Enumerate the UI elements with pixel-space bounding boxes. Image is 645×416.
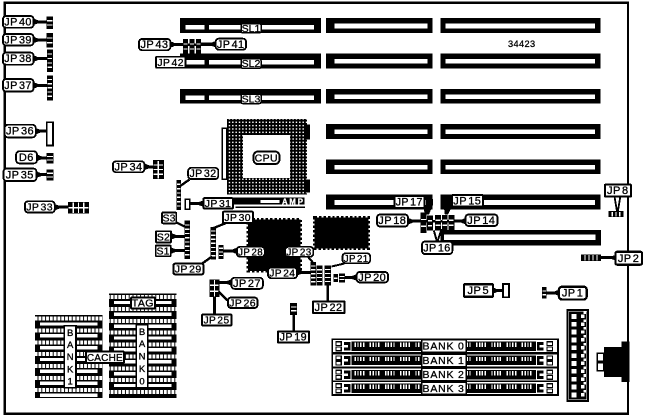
svg-text:JP 38: JP 38 bbox=[4, 53, 32, 65]
svg-text:JP 32: JP 32 bbox=[189, 168, 216, 180]
svg-text:K: K bbox=[139, 364, 146, 375]
svg-text:BANK 1: BANK 1 bbox=[423, 355, 465, 367]
svg-text:JP 15: JP 15 bbox=[453, 195, 481, 207]
svg-text:JP 17: JP 17 bbox=[396, 197, 423, 209]
svg-text:N: N bbox=[139, 352, 146, 363]
svg-text:JP 28: JP 28 bbox=[238, 247, 263, 258]
svg-text:AMP: AMP bbox=[282, 198, 305, 207]
svg-text:BANK 2: BANK 2 bbox=[423, 369, 465, 381]
svg-text:34423: 34423 bbox=[508, 39, 536, 49]
svg-text:JP 43: JP 43 bbox=[140, 39, 168, 51]
svg-text:JP 5: JP 5 bbox=[468, 285, 489, 297]
svg-text:JP 37: JP 37 bbox=[4, 80, 32, 92]
svg-text:CPU: CPU bbox=[255, 152, 278, 164]
svg-text:S2: S2 bbox=[157, 231, 170, 243]
svg-text:A: A bbox=[139, 339, 146, 350]
svg-text:JP 25: JP 25 bbox=[204, 316, 230, 327]
svg-text:JP 26: JP 26 bbox=[229, 297, 256, 309]
svg-text:JP 19: JP 19 bbox=[280, 332, 307, 344]
svg-text:SL1: SL1 bbox=[242, 23, 261, 35]
svg-text:JP 42: JP 42 bbox=[157, 58, 184, 69]
svg-text:K: K bbox=[67, 364, 74, 375]
svg-text:JP 14: JP 14 bbox=[467, 215, 495, 227]
svg-text:JP 2: JP 2 bbox=[618, 253, 639, 265]
svg-text:S1: S1 bbox=[156, 245, 169, 257]
svg-text:JP 30: JP 30 bbox=[224, 213, 251, 224]
svg-text:JP 27: JP 27 bbox=[233, 278, 261, 290]
svg-text:BANK 3: BANK 3 bbox=[423, 383, 465, 395]
svg-text:A: A bbox=[67, 340, 74, 351]
svg-text:JP 41: JP 41 bbox=[217, 39, 245, 51]
svg-text:JP 31: JP 31 bbox=[205, 199, 232, 210]
svg-text:JP 36: JP 36 bbox=[6, 126, 34, 138]
svg-text:JP 24: JP 24 bbox=[269, 269, 295, 280]
svg-text:BANK 0: BANK 0 bbox=[423, 341, 465, 353]
svg-text:S3: S3 bbox=[162, 213, 175, 225]
svg-text:JP 33: JP 33 bbox=[26, 202, 53, 214]
svg-text:CACHE: CACHE bbox=[87, 353, 123, 364]
svg-text:JP 22: JP 22 bbox=[315, 302, 343, 314]
svg-text:SL2: SL2 bbox=[242, 58, 261, 70]
svg-text:N: N bbox=[67, 352, 74, 363]
svg-text:JP 23: JP 23 bbox=[286, 247, 311, 258]
svg-text:0: 0 bbox=[139, 376, 144, 387]
svg-text:JP 8: JP 8 bbox=[607, 185, 628, 197]
svg-text:JP 20: JP 20 bbox=[358, 272, 386, 284]
svg-text:JP 18: JP 18 bbox=[378, 215, 406, 227]
svg-text:B: B bbox=[139, 327, 145, 338]
svg-text:JP 21: JP 21 bbox=[344, 254, 369, 265]
svg-text:1: 1 bbox=[68, 377, 73, 388]
svg-text:JP 1: JP 1 bbox=[562, 288, 583, 300]
svg-text:SL3: SL3 bbox=[242, 93, 261, 105]
svg-text:JP 29: JP 29 bbox=[175, 264, 202, 276]
svg-text:B: B bbox=[67, 328, 73, 339]
svg-text:D6: D6 bbox=[19, 152, 34, 164]
svg-text:TAG: TAG bbox=[132, 298, 154, 310]
svg-text:JP 35: JP 35 bbox=[6, 169, 34, 181]
svg-text:JP 34: JP 34 bbox=[115, 161, 143, 173]
svg-text:JP 39: JP 39 bbox=[4, 34, 32, 46]
svg-text:JP 40: JP 40 bbox=[4, 16, 32, 28]
svg-text:JP 16: JP 16 bbox=[423, 242, 451, 254]
